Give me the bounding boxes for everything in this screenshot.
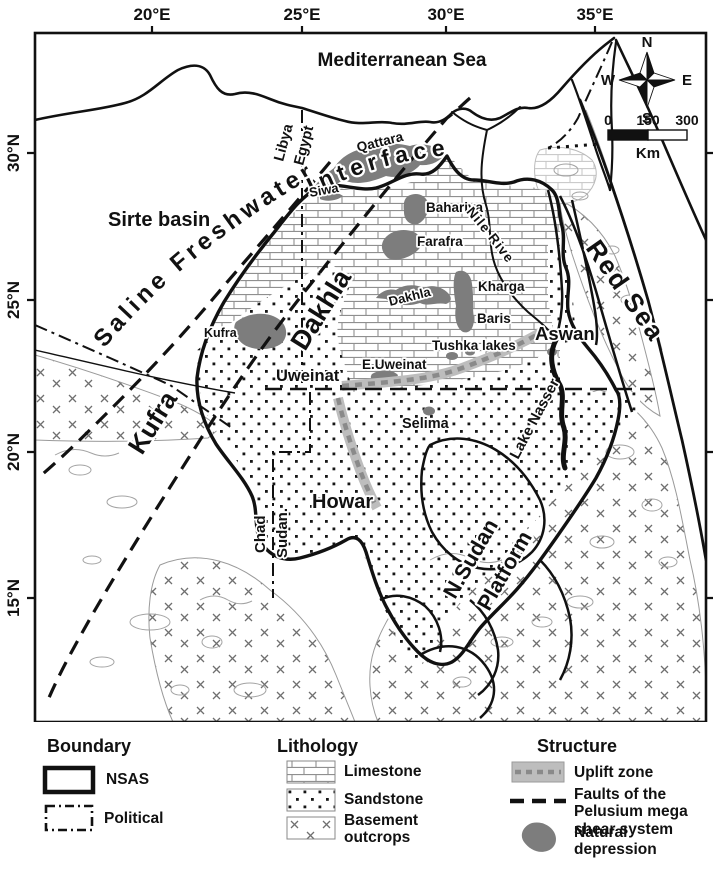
compass-e: E (682, 72, 692, 89)
legend-basement-label: Basement outcrops (344, 812, 449, 847)
legend-sandstone-label: Sandstone (344, 791, 423, 808)
tick-20e: 20°E (133, 5, 170, 24)
selima-label: Selima (402, 416, 450, 432)
compass-n: N (642, 34, 653, 51)
kufra-oasis-label: Kufra (204, 326, 238, 340)
scale-300: 300 (675, 112, 699, 128)
depression-swatch (514, 818, 562, 858)
selima-depression (423, 407, 435, 416)
tick-35e: 35°E (576, 5, 613, 24)
legend-nsas-label: NSAS (106, 771, 149, 788)
legend-boundary-title: Boundary (47, 736, 131, 757)
map-canvas: Mediterranean Sea Sirte basin Saline Fre… (0, 0, 714, 722)
scale-0: 0 (604, 112, 612, 128)
limestone-swatch (286, 760, 336, 784)
legend-structure-title: Structure (537, 736, 617, 757)
kharga-depression (454, 271, 474, 333)
legend-depression-label: Natural depression (574, 824, 694, 859)
political-swatch (42, 802, 96, 834)
tushka-lake-1 (446, 352, 458, 360)
howar-label: Howar (312, 491, 373, 513)
sandstone-swatch (286, 788, 336, 812)
sudan-label: Sudan. (274, 508, 291, 558)
e-uweinat-label: E.Uweinat (362, 357, 427, 372)
tick-15n: 15°N (4, 579, 23, 617)
legend-lithology-title: Lithology (277, 736, 358, 757)
mediterranean-sea-label: Mediterranean Sea (318, 50, 487, 71)
nsas-swatch (40, 763, 98, 797)
legend-political-label: Political (104, 810, 163, 827)
tushka-lakes-label: Tushka lakes (432, 338, 516, 353)
tick-20n: 20°N (4, 433, 23, 471)
chad-label: Chad (252, 516, 269, 554)
legend: Boundary NSAS Political Lithology Limest… (0, 722, 714, 876)
tick-30n: 30°N (4, 134, 23, 172)
legend-limestone-label: Limestone (344, 763, 422, 780)
faults-swatch (508, 794, 568, 808)
tick-30e: 30°E (427, 5, 464, 24)
uweinat-label: Uweinat (276, 367, 340, 385)
basement-swatch (286, 816, 336, 840)
uplift-swatch (510, 760, 566, 784)
nsas-geological-map-figure: Mediterranean Sea Sirte basin Saline Fre… (0, 0, 714, 876)
tick-25n: 25°N (4, 281, 23, 319)
scale-150: 150 (636, 112, 660, 128)
scale-unit: Km (636, 145, 660, 162)
baris-label: Baris (477, 311, 511, 326)
sirte-basin-label: Sirte basin (108, 209, 210, 231)
kharga-label: Kharga (478, 279, 525, 294)
legend-uplift-label: Uplift zone (574, 764, 653, 781)
farafra-label: Farafra (417, 234, 463, 249)
tick-25e: 25°E (283, 5, 320, 24)
aswan-label: Aswan (535, 323, 595, 344)
compass-w: W (601, 72, 616, 89)
